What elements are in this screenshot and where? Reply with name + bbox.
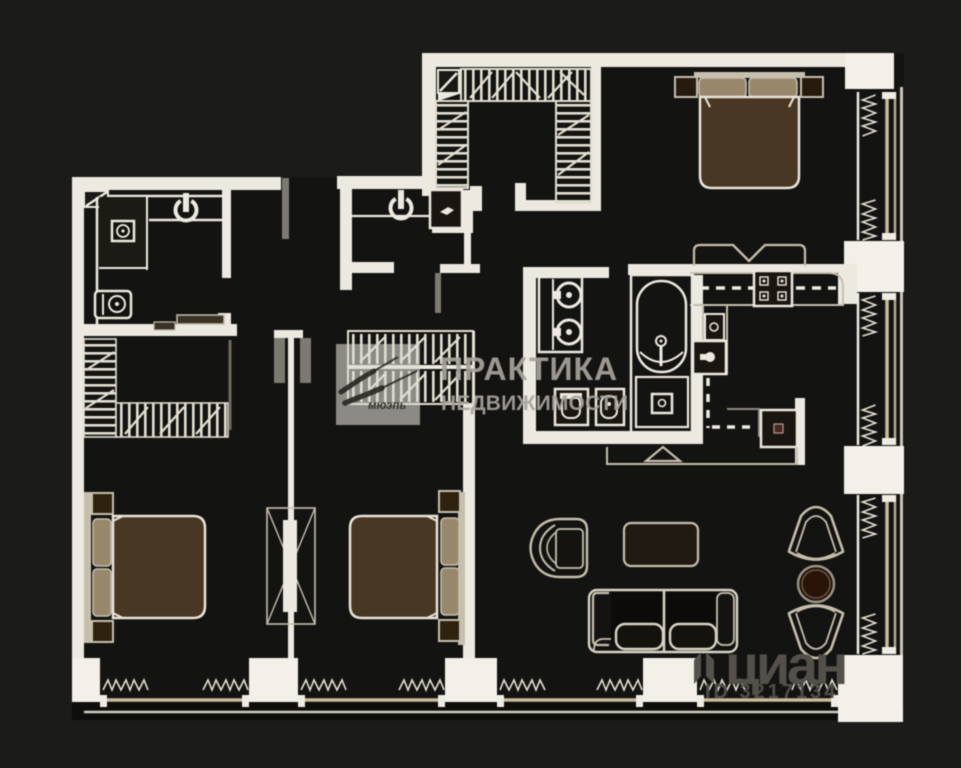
- svg-text:НЕДВИЖИМОСТИ: НЕДВИЖИМОСТИ: [441, 392, 628, 415]
- svg-text:ПРАКТИКА: ПРАКТИКА: [440, 351, 618, 387]
- svg-text:мюэпь: мюэпь: [368, 400, 407, 412]
- svg-text:ID 3217134: ID 3217134: [705, 681, 838, 703]
